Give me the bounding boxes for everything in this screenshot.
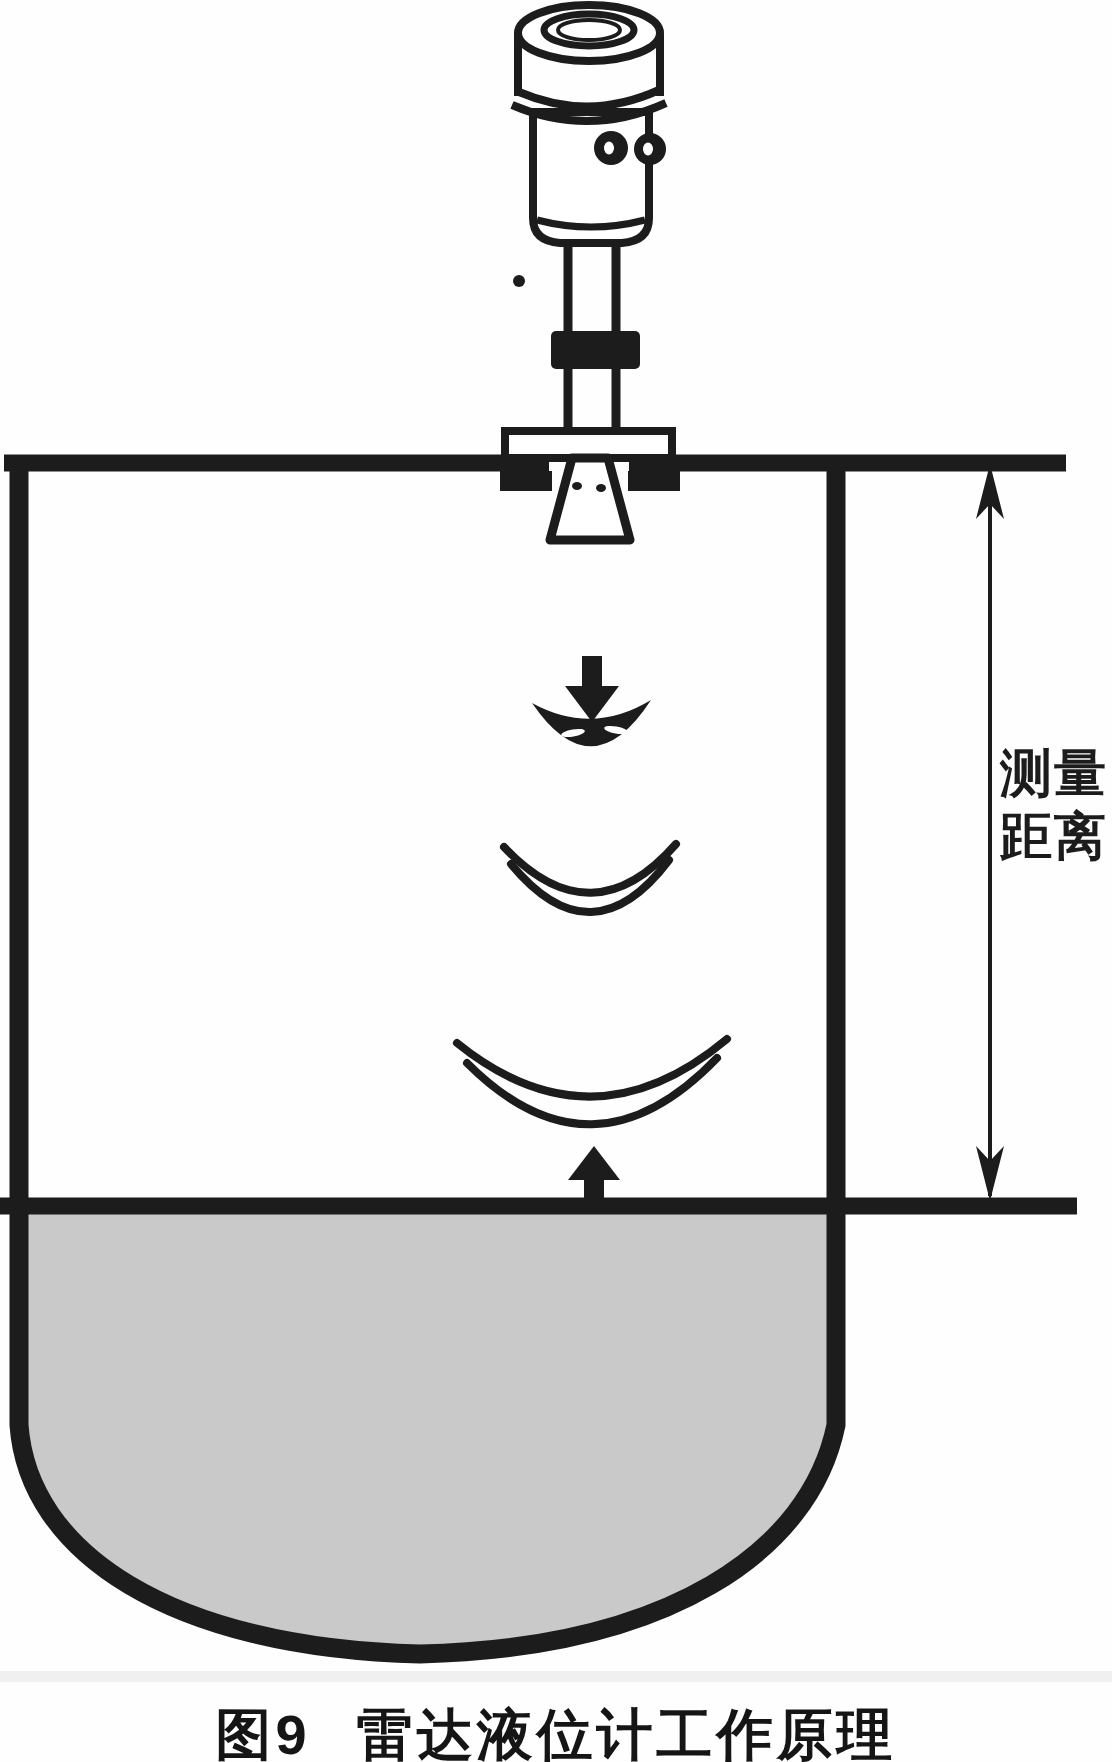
- pipe-coupling: [551, 331, 640, 369]
- figure-title: 雷达液位计工作原理: [357, 1698, 897, 1762]
- measuring-distance-label-line2: 距离: [1000, 805, 1112, 868]
- radar-level-gauge-diagram: 测量 距离 图9 雷达液位计工作原理: [0, 0, 1112, 1762]
- horn-antenna: [550, 458, 630, 540]
- emitted-signal-arrow: [565, 656, 619, 722]
- nozzle-collar-left: [500, 471, 552, 491]
- scan-artifact-line: [0, 1671, 1112, 1682]
- figure-number: 图9: [215, 1698, 310, 1762]
- measuring-distance-label: 测量 距离: [1000, 742, 1112, 868]
- diagram-canvas: [0, 0, 1112, 1762]
- nozzle-collar-right: [628, 471, 680, 491]
- measuring-distance-label-line1: 测量: [1000, 742, 1112, 805]
- radar-wave-arc-large: [457, 1039, 727, 1124]
- radar-transmitter-head: [512, 5, 666, 243]
- radar-wave-arc-medium: [504, 844, 676, 912]
- reflected-signal-arrow: [568, 1146, 620, 1205]
- figure-caption: 图9 雷达液位计工作原理: [215, 1698, 896, 1762]
- radar-waves: [457, 656, 727, 1205]
- print-speck: [513, 275, 525, 287]
